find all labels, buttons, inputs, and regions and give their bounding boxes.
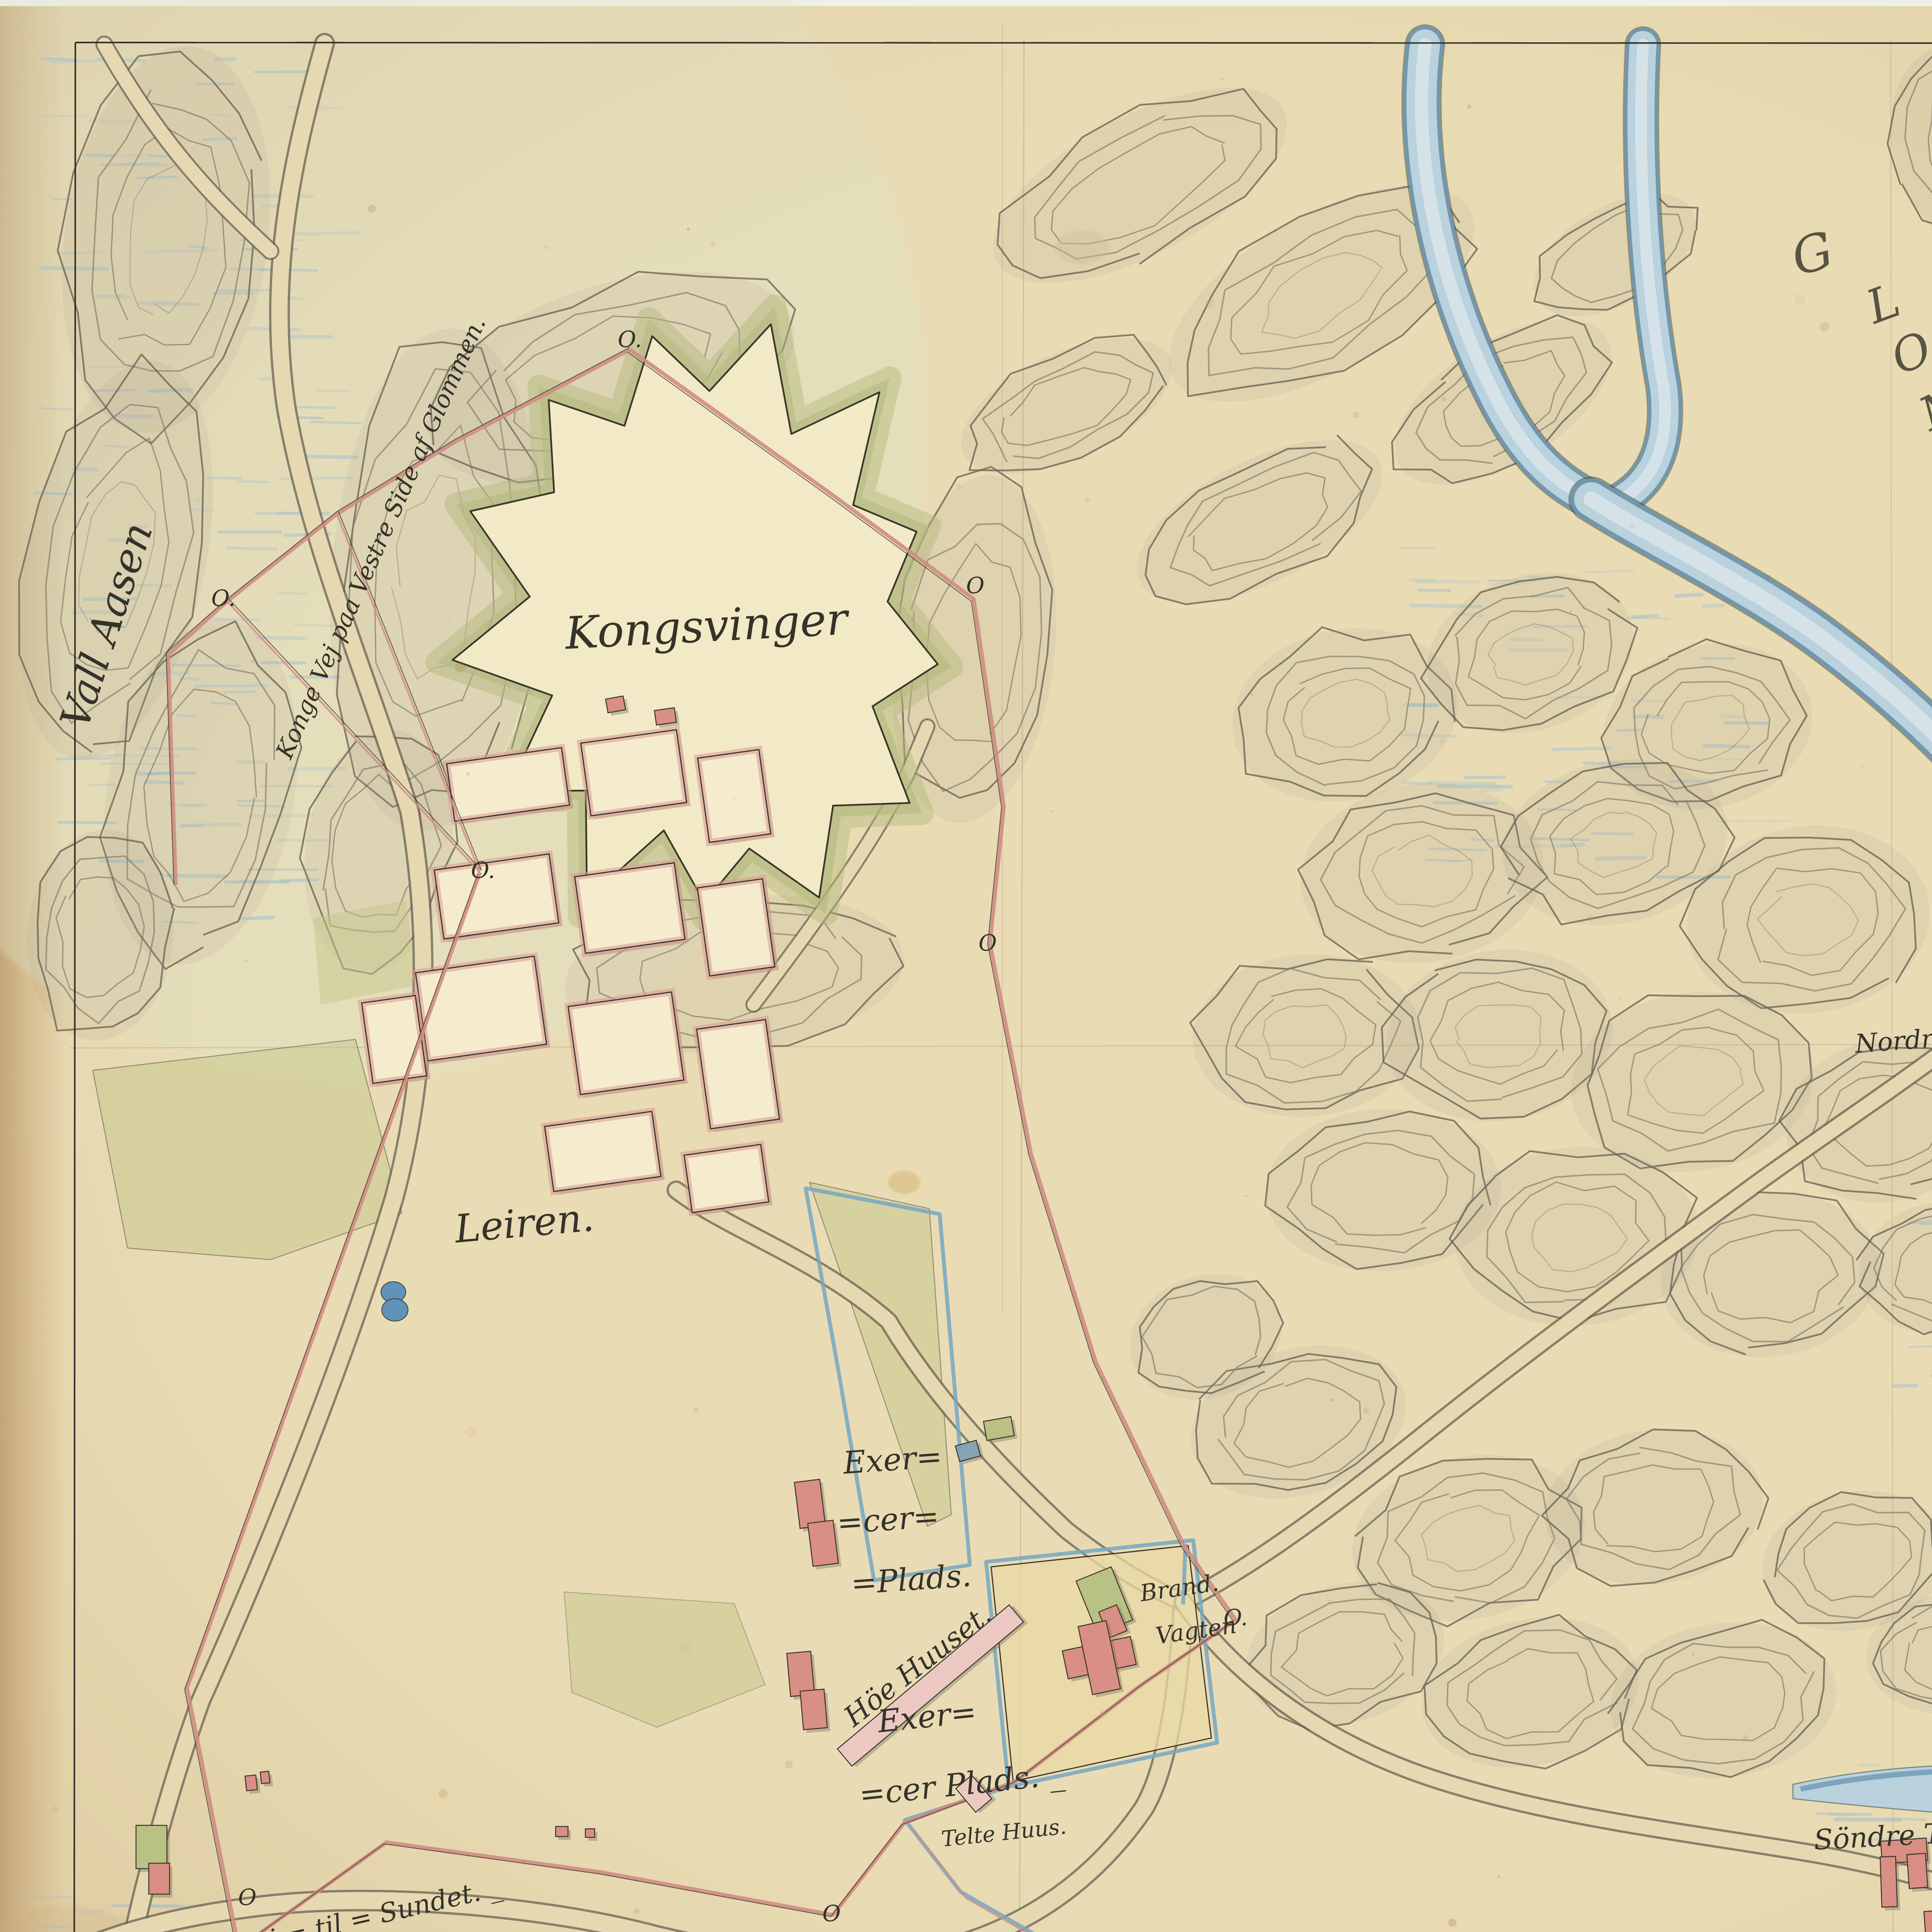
- o-marker: O: [978, 930, 997, 956]
- o-marker: O: [822, 1900, 841, 1927]
- map-sheet: Situations Rids af Kongsvinger Fæstning …: [0, 0, 1932, 1932]
- label-exercise-n1: Exer=: [841, 1438, 943, 1481]
- building: [149, 1863, 172, 1898]
- town-block: [697, 1019, 783, 1133]
- building: [1880, 1856, 1900, 1911]
- o-marker: O.: [211, 585, 236, 611]
- town-block: [568, 992, 687, 1098]
- building: [1924, 1910, 1932, 1932]
- town-block: [416, 956, 550, 1065]
- o-marker: O.: [1224, 1604, 1248, 1631]
- town-block: [697, 749, 774, 846]
- building: [808, 1520, 841, 1570]
- o-marker: O.: [618, 326, 642, 352]
- town-block: [575, 862, 689, 957]
- building: [1907, 1853, 1931, 1892]
- label-exercise-n2: =cer=: [836, 1498, 940, 1541]
- o-marker: O: [966, 572, 985, 599]
- town-block: [581, 729, 690, 820]
- o-marker: O: [238, 1884, 257, 1910]
- pond-south: [382, 1299, 408, 1321]
- town-block: [697, 878, 779, 980]
- o-marker: O.: [471, 857, 495, 883]
- town-block: [684, 1144, 772, 1216]
- building: [800, 1689, 830, 1733]
- field-west-of-camp: [93, 1039, 402, 1260]
